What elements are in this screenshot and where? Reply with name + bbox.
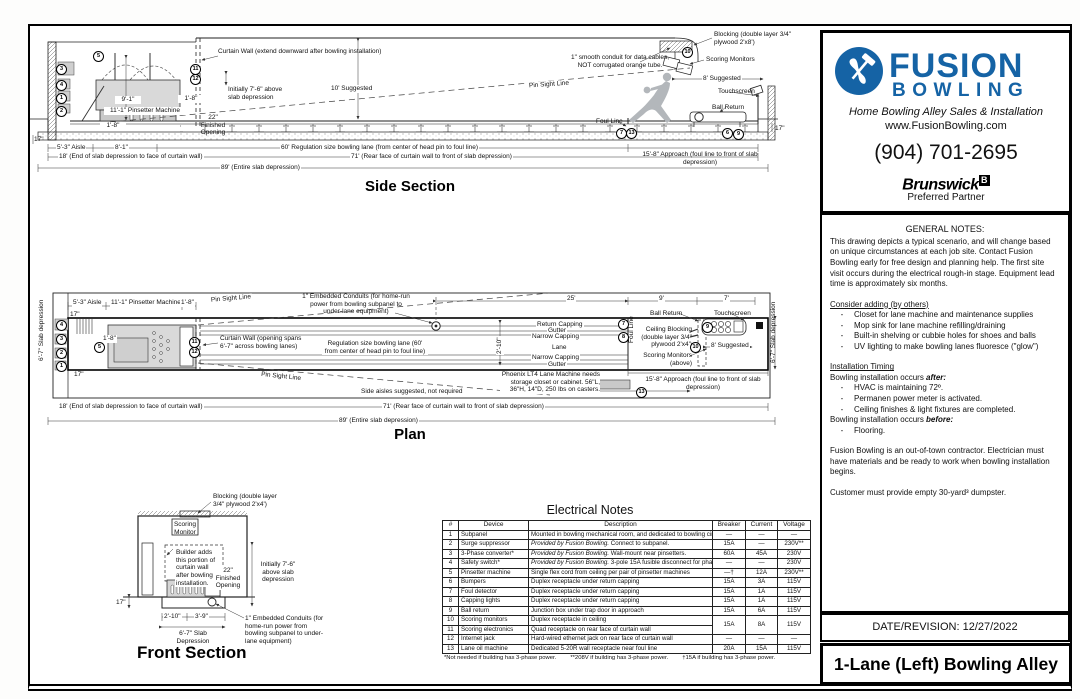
plan-dim-18: 18' (End of slab depression to face of c…	[58, 403, 204, 411]
list-item: -HVAC is maintaining 72º.	[830, 383, 1060, 394]
callout-2: 2	[56, 106, 67, 117]
plan-7-dim: 7'	[723, 295, 730, 303]
pinsetter-machine-dim: 11'-1" Pinsetter Machine	[104, 107, 186, 115]
callout-6: 6	[722, 128, 733, 139]
front-scoring-monitor-label: Scoring Monitor	[173, 521, 197, 536]
front-3-9-dim: 3'-9"	[194, 613, 209, 621]
side-section-drawing: Curtain Wall (extend downward after bowl…	[30, 28, 820, 203]
foul-line-label: Foul Line	[596, 118, 623, 126]
timing-before: Bowling installation occurs before:	[830, 415, 1060, 426]
list-item: -Closet for lane machine and maintenance…	[830, 310, 1060, 321]
plan-dim-71: 71' (Rear face of curtain wall to front …	[382, 403, 545, 411]
plan-slab-left-label: 6'-7" Slab depression	[38, 300, 46, 361]
timing-after: Bowling installation occurs after:	[830, 373, 1060, 384]
side-section-title: Side Section	[330, 178, 490, 196]
front-builder-note: Builder adds this portion of curtain wal…	[175, 549, 217, 587]
callout-5: 5	[93, 51, 104, 62]
callout-4: 4	[56, 320, 67, 331]
electrical-notes-table: #DeviceDescriptionBreakerCurrentVoltage …	[442, 520, 811, 654]
callout-4: 4	[56, 80, 67, 91]
plan-geometry	[30, 283, 820, 445]
table-row: 7Foul detectorDuplex receptacle under re…	[443, 587, 811, 597]
callout-10: 10	[690, 342, 701, 353]
plan-aisle-dim: 5'-3" Aisle	[72, 299, 102, 307]
sheet-title: 1-Lane (Left) Bowling Alley	[823, 646, 1069, 682]
callout-12: 12	[189, 347, 200, 358]
phone-number: (904) 701-2695	[823, 141, 1069, 165]
ball-return-label: Ball Return	[712, 104, 744, 112]
scoring-monitors-label: Scoring Monitors	[706, 56, 755, 64]
plan-pit-dim: 1'-8"	[102, 335, 117, 343]
date-revision: DATE/REVISION: 12/27/2022	[822, 615, 1068, 640]
callout-8: 8	[618, 332, 629, 343]
table-row: 9Ball returnJunction box under trap door…	[443, 606, 811, 616]
data-conduit-note: 1" smooth conduit for data cables, NOT c…	[570, 54, 670, 69]
callout-13: 13	[636, 387, 647, 398]
machine-height-dim: 9'-1"	[115, 96, 141, 104]
plan-pinsetter-dim: 11'-1" Pinsetter Machine	[110, 299, 182, 307]
table-header-row: #DeviceDescriptionBreakerCurrentVoltage	[443, 521, 811, 531]
drawing-sheet: Curtain Wall (extend downward after bowl…	[0, 0, 1080, 699]
plan-17-top: 17"	[70, 311, 80, 319]
front-17-dim: 17"	[116, 599, 126, 607]
plan-foul-line-label: Foul Line	[628, 316, 636, 343]
general-notes-heading: GENERAL NOTES:	[830, 224, 1060, 236]
plan-curtain-wall-label: Curtain Wall (opening spans 6'-7" across…	[220, 335, 306, 350]
callout-7: 7	[618, 319, 629, 330]
lane-label: Lane	[551, 344, 567, 352]
dim-18: 18' (End of slab depression to face of c…	[58, 153, 204, 161]
front-section-title: Front Section	[137, 643, 287, 663]
dim-71: 71' (Rear face of curtain wall to front …	[350, 153, 513, 161]
table-row: 13Lane oil machineDedicated 5-20R wall r…	[443, 644, 811, 654]
dim-89: 89' (Entire slab depression)	[220, 164, 301, 172]
general-notes: GENERAL NOTES: This drawing depicts a ty…	[822, 215, 1068, 508]
brand-name-bottom: BOWLING	[892, 80, 1029, 102]
plan-17-bottom: 17"	[74, 371, 84, 379]
plan-8-suggested: 8' Suggested	[710, 342, 750, 350]
list-item: -Permanen power meter is activated.	[830, 394, 1060, 405]
callout-3: 3	[56, 64, 67, 75]
plan-touchscreen-label: Touchscreen	[714, 310, 751, 318]
callout-1: 1	[56, 361, 67, 372]
pit-dim: 1'-8"	[100, 122, 126, 130]
plan-slab-right-label: 6'-7" Slab depression	[770, 302, 778, 363]
general-notes-box: GENERAL NOTES: This drawing depicts a ty…	[820, 213, 1070, 613]
electrical-notes: Electrical Notes #DeviceDescriptionBreak…	[440, 503, 812, 668]
finished-opening-label: 22" Finished Opening	[198, 114, 228, 137]
table-row: 4Safety switch*Provided by Fusion Bowlin…	[443, 559, 811, 569]
callout-12: 12	[190, 74, 201, 85]
table-row: 6BumpersDuplex receptacle under return c…	[443, 578, 811, 588]
callout-5: 5	[94, 342, 105, 353]
callout-9: 9	[733, 129, 744, 140]
table-row: 33-Phase converter*Provided by Fusion Bo…	[443, 549, 811, 559]
consider-heading: Consider adding (by others)	[830, 300, 1060, 311]
table-row: 12Internet jackHard-wired ethernet jack …	[443, 635, 811, 645]
sheet-title-box: 1-Lane (Left) Bowling Alley	[820, 643, 1072, 685]
ceiling-blocking-label: Ceiling Blocking (double layer 3/4" plyw…	[630, 326, 692, 349]
plan-approach-dim: 15'-8" Approach (foul line to front of s…	[644, 376, 762, 391]
callout-9: 9	[702, 322, 713, 333]
lane-length-dim: 60' Regulation size bowling lane (from c…	[280, 144, 479, 152]
front-finished-opening: 22" Finished Opening	[213, 567, 243, 590]
plan-25-dim: 25'	[566, 295, 576, 303]
slab-depth-left: 17"	[34, 136, 44, 144]
front-2-10-dim: 2'-10"	[163, 613, 182, 621]
gap-dim: 1'-8"	[178, 95, 204, 103]
fusion-logo-icon	[833, 45, 885, 97]
gutter-bottom-label: Gutter	[547, 361, 567, 369]
electrical-footnote: *Not needed if building has 3-phase powe…	[444, 655, 789, 661]
contractor-note: Fusion Bowling is an out-of-town contrac…	[830, 446, 1060, 478]
date-revision-box: DATE/REVISION: 12/27/2022	[820, 613, 1070, 642]
blocking-label: Blocking (double layer 3/4" plywood 2'x8…	[714, 31, 802, 46]
approach-dim: 15'-8" Approach (foul line to front of s…	[636, 151, 764, 166]
list-item: -Mop sink for lane machine refilling/dra…	[830, 321, 1060, 332]
preferred-partner-label: Preferred Partner	[823, 192, 1069, 203]
dim-8-1: 8'-1"	[114, 144, 129, 152]
plan-dim-89: 89' (Entire slab depression)	[338, 417, 419, 425]
table-row: 2Surge suppressorProvided by Fusion Bowl…	[443, 540, 811, 550]
callout-10: 10	[682, 47, 693, 58]
table-row: 5Pinsetter machineSingle flex cord from …	[443, 568, 811, 578]
notes-intro: This drawing depicts a typical scenario,…	[830, 237, 1060, 290]
plan-title: Plan	[330, 426, 490, 444]
touchscreen-label: Touchscreen	[718, 88, 755, 96]
list-item: -Ceiling finishes & light fixtures are c…	[830, 405, 1060, 416]
callout-3: 3	[56, 334, 67, 345]
table-row: 8Capping lightsDuplex receptacle under r…	[443, 597, 811, 607]
curtain-wall-label: Curtain Wall (extend downward after bowl…	[218, 48, 330, 56]
monitor-distance-label: 8' Suggested	[702, 75, 742, 83]
brunswick-logo-icon: B	[979, 175, 990, 186]
brand-tagline: Home Bowling Alley Sales & Installation	[823, 106, 1069, 118]
callout-13: 13	[626, 128, 637, 139]
consider-list: -Closet for lane machine and maintenance…	[830, 310, 1060, 352]
plan-reg-lane-label: Regulation size bowling lane (60' from c…	[322, 340, 428, 355]
plan-gap-dim: 1'-8"	[180, 299, 195, 307]
narrow-capping-top-label: Narrow Capping	[531, 333, 580, 341]
electrical-notes-title: Electrical Notes	[440, 503, 740, 517]
plan-scoring-monitors-label: Scoring Monitors (above)	[638, 352, 692, 367]
table-row: 10Scoring monitorsDuplex receptacle in c…	[443, 616, 811, 626]
plan-lane-width-dim: 2'-10"	[496, 336, 504, 355]
list-item: -UV lighting to make bowling lanes fluor…	[830, 342, 1060, 353]
front-section-drawing: Blocking (double layer 3/4" plywood 2'x4…	[115, 485, 355, 677]
aisle-dim: 5'-3" Aisle	[56, 144, 86, 152]
plan-drawing: 5'-3" Aisle 11'-1" Pinsetter Machine 1'-…	[30, 283, 820, 445]
plan-conduits-label: 1" Embedded Conduits (for home-run power…	[302, 293, 410, 316]
callout-1: 1	[56, 93, 67, 104]
table-row: 1SubpanelMounted in bowling mechanical r…	[443, 530, 811, 540]
list-item: -Flooring.	[830, 426, 1060, 437]
dumpster-note: Customer must provide empty 30-yard³ dum…	[830, 488, 1060, 499]
timing-heading: Installation Timing	[830, 362, 1060, 373]
side-aisles-note: Side aisles suggested, not required	[360, 388, 464, 396]
phoenix-note: Phoenix LT4 Lane Machine needs storage c…	[500, 371, 600, 394]
list-item: -Built-in shelving or cubbie holes for s…	[830, 331, 1060, 342]
front-conduits-label: 1" Embedded Conduits (for home-run power…	[245, 615, 325, 646]
slab-depth-right: 17"	[775, 125, 785, 133]
plan-ball-return-label: Ball Return	[650, 310, 682, 318]
side-section-geometry	[30, 28, 820, 203]
initially-height-label: Initially 7'-6" above slab depression	[228, 86, 286, 101]
plan-9-dim: 9'	[658, 295, 665, 303]
callout-2: 2	[56, 348, 67, 359]
brand-website: www.FusionBowling.com	[823, 120, 1069, 132]
front-initially-label: Initially 7'-6" above slab depression	[256, 561, 300, 584]
logo-box: FUSION BOWLING Home Bowling Alley Sales …	[820, 30, 1072, 214]
front-blocking-label: Blocking (double layer 3/4" plywood 2'x4…	[213, 493, 277, 508]
ceiling-height-label: 10' Suggested	[330, 85, 373, 93]
